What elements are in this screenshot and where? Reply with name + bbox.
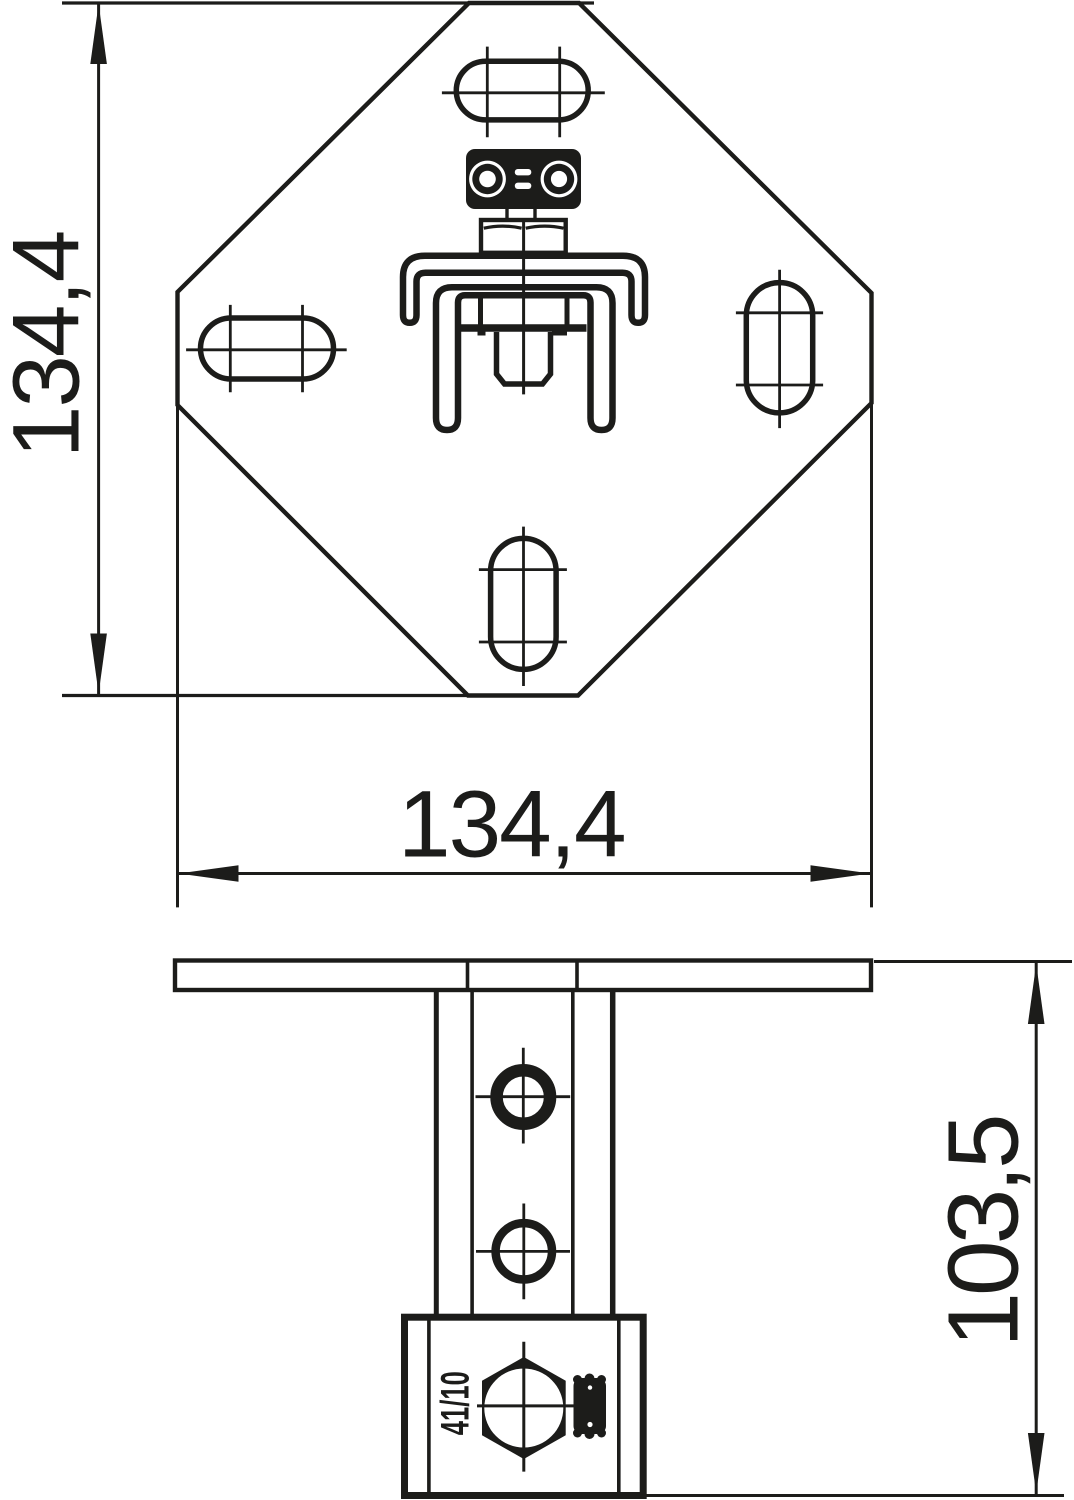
svg-text:134,4: 134,4 — [398, 772, 624, 878]
svg-text:41/10: 41/10 — [434, 1371, 478, 1435]
svg-text:103,5: 103,5 — [928, 1117, 1040, 1348]
svg-text:134,4: 134,4 — [0, 232, 99, 458]
